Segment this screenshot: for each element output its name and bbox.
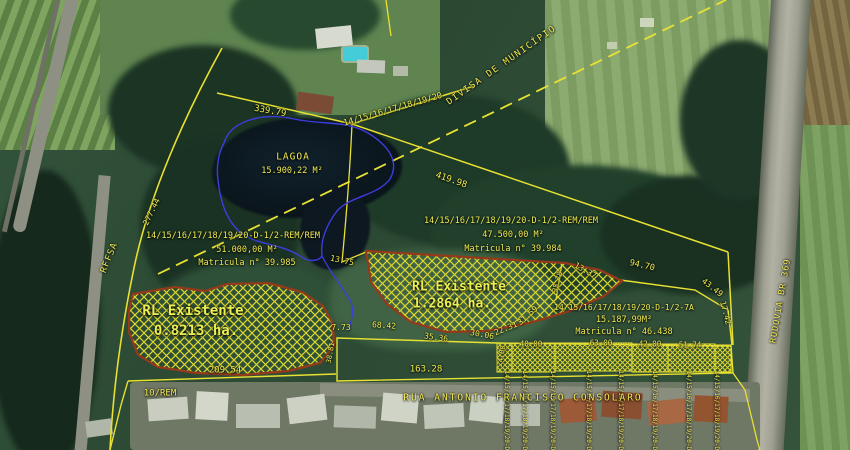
street-label: RUA ANTONIO FRANCISCO CONSOLARO bbox=[403, 393, 642, 403]
strip-width-2: 63.00 bbox=[590, 339, 613, 347]
parcel-west-id: 14/15/16/17/18/19/20-D-1/2-REM/REM bbox=[146, 232, 320, 241]
strip-lot-hatch bbox=[715, 345, 731, 372]
parcel-east-id: 14/15/16/17/18/19/20-D-1/2-REM/REM bbox=[424, 217, 598, 226]
parcel-east-area: 47.500,00 M² bbox=[482, 231, 543, 240]
dim-rl-south-2: 68.42 bbox=[372, 321, 397, 331]
reserve-central-label: RL Existente bbox=[412, 281, 506, 294]
southeast-corner-line bbox=[733, 373, 760, 450]
dim-rl-south-1: 7.73 bbox=[331, 324, 350, 332]
top-tick-line bbox=[386, 0, 391, 36]
strip-lot-id-vertical: 14/15/16/17/18/19/20-D-1 bbox=[549, 371, 555, 450]
lagoon-name: LAGOA bbox=[276, 152, 310, 162]
strip-lot-id-vertical: 14/15/16/17/18/19/20-D-1 bbox=[651, 371, 657, 450]
parcel-southeast-area: 15.187,99M² bbox=[596, 316, 652, 325]
dim-south-mid: 163.28 bbox=[410, 366, 443, 375]
parcel-west-registry: Matricula n° 39.985 bbox=[198, 259, 295, 268]
strip-lot-id-vertical: 14/15/16/17/18/19/20-D-1 bbox=[617, 371, 623, 450]
cadastral-satellite-map: DIVISA DE MUNICÍPIO 14/15/16/17/18/19/20… bbox=[0, 0, 850, 450]
reserve-central-area: 1.2864 ha. bbox=[413, 298, 491, 311]
reserve-west-area: 0.8213 ha. bbox=[154, 324, 238, 338]
strip-width-3: 42.00 bbox=[639, 340, 662, 348]
strip-lot-id-vertical: 14/15/16/17/18/19/20-D-1 bbox=[585, 371, 591, 450]
parcel-east-registry: Matricula n° 39.984 bbox=[464, 245, 561, 254]
strip-lot-id-vertical: 14/15/16/17/18/19/20-D-1 bbox=[521, 371, 527, 450]
strip-lot-id-vertical: 14/15/16/17/18/19/20-D-1 bbox=[503, 371, 509, 450]
parcel-west-area: 51.000,00 M² bbox=[216, 246, 277, 255]
dim-south-west: 209.54 bbox=[209, 367, 242, 376]
central-divider-line bbox=[342, 124, 352, 262]
strip-width-4: 51.74 bbox=[679, 341, 702, 349]
strip-lot-id-vertical: 14/15/16/17/18/19/20-D-1 bbox=[685, 371, 691, 450]
strip-width-1: 40.00 bbox=[520, 340, 543, 348]
lagoon-area: 15.900,22 M² bbox=[261, 167, 322, 176]
strip-lot-id-vertical: 14/15/16/17/18/19/20-D-1 bbox=[713, 371, 719, 450]
parcel-south-id: 10/REM bbox=[144, 390, 177, 399]
reserve-west-label: RL Existente bbox=[142, 304, 243, 318]
parcel-southeast-id: 14/15/16/17/18/19/20-D-1/2-7A bbox=[554, 304, 694, 312]
parcel-southeast-registry: Matricula n° 46.438 bbox=[575, 328, 672, 337]
